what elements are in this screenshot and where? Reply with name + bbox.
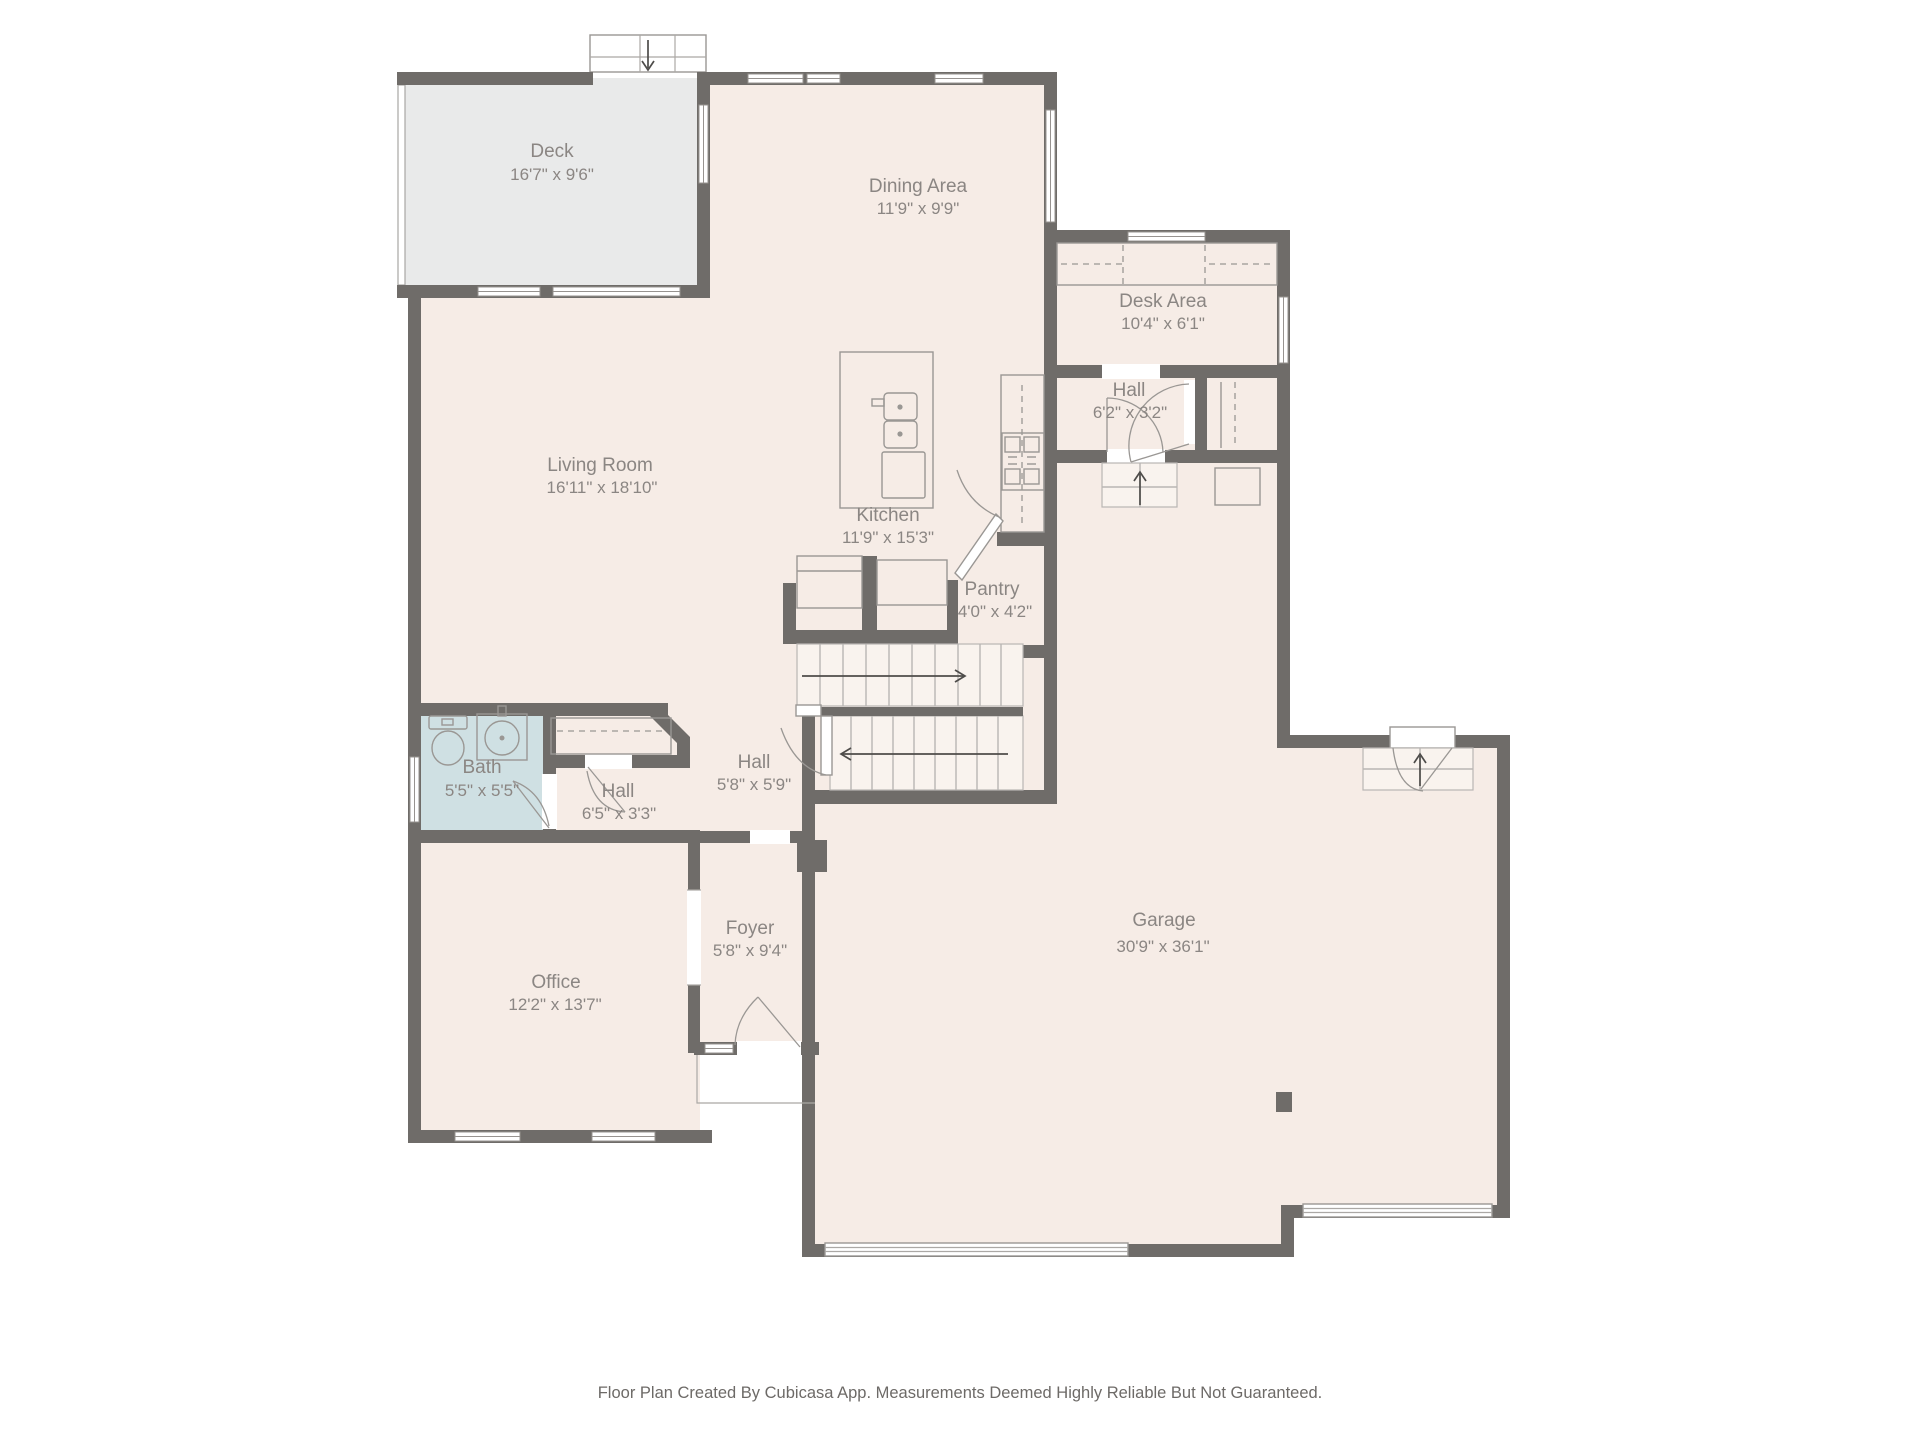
porch-outline [697, 1055, 815, 1103]
room-dims-desk-area: 10'4" x 6'1" [1121, 314, 1205, 333]
deck-entry-steps [590, 35, 706, 72]
room-label-pantry: Pantry [965, 579, 1020, 600]
room-dims-hall-upper: 6'2" x 3'2" [1093, 403, 1167, 422]
stair-door-leaf [821, 716, 832, 775]
room-label-deck: Deck [530, 141, 574, 162]
room-dims-deck: 16'7" x 9'6" [510, 165, 594, 184]
room-label-foyer: Foyer [726, 918, 775, 939]
floor-plan-svg: Deck 16'7" x 9'6" Dining Area 11'9" x 9'… [0, 0, 1920, 1440]
room-dims-hall-stairs: 5'8" x 5'9" [717, 775, 791, 794]
room-dims-living-room: 16'11" x 18'10" [547, 478, 658, 497]
footer-disclaimer: Floor Plan Created By Cubicasa App. Meas… [598, 1384, 1323, 1402]
room-label-dining-area: Dining Area [869, 176, 968, 197]
stair-mid-rail [818, 707, 1023, 716]
room-dims-garage: 30'9" x 36'1" [1116, 937, 1209, 956]
garage-post [1276, 1092, 1292, 1112]
room-label-hall-upper: Hall [1113, 380, 1146, 401]
deck-railing [398, 85, 405, 285]
garage-entry-steps [1363, 748, 1473, 791]
room-dims-pantry: 4'0" x 4'2" [958, 602, 1032, 621]
deck-floor [403, 78, 700, 292]
room-label-office: Office [531, 972, 580, 993]
room-label-bath: Bath [462, 757, 501, 778]
room-label-hall-bath: Hall [602, 781, 635, 802]
room-dims-hall-bath: 6'5" x 3'3" [582, 804, 656, 823]
room-label-living-room: Living Room [547, 455, 653, 476]
room-dims-foyer: 5'8" x 9'4" [713, 941, 787, 960]
stair-mid-landing [796, 705, 821, 716]
room-dims-bath: 5'5" x 5'5" [445, 781, 519, 800]
room-dims-kitchen: 11'9" x 15'3" [842, 528, 934, 547]
room-label-desk-area: Desk Area [1119, 291, 1207, 312]
room-label-hall-stairs: Hall [738, 752, 771, 773]
garage-entry-door [1390, 727, 1455, 748]
room-label-garage: Garage [1132, 910, 1195, 931]
garage-hall-steps [1102, 463, 1177, 507]
room-label-kitchen: Kitchen [856, 505, 919, 526]
room-dims-office: 12'2" x 13'7" [508, 995, 601, 1014]
room-dims-dining-area: 11'9" x 9'9" [877, 199, 960, 218]
